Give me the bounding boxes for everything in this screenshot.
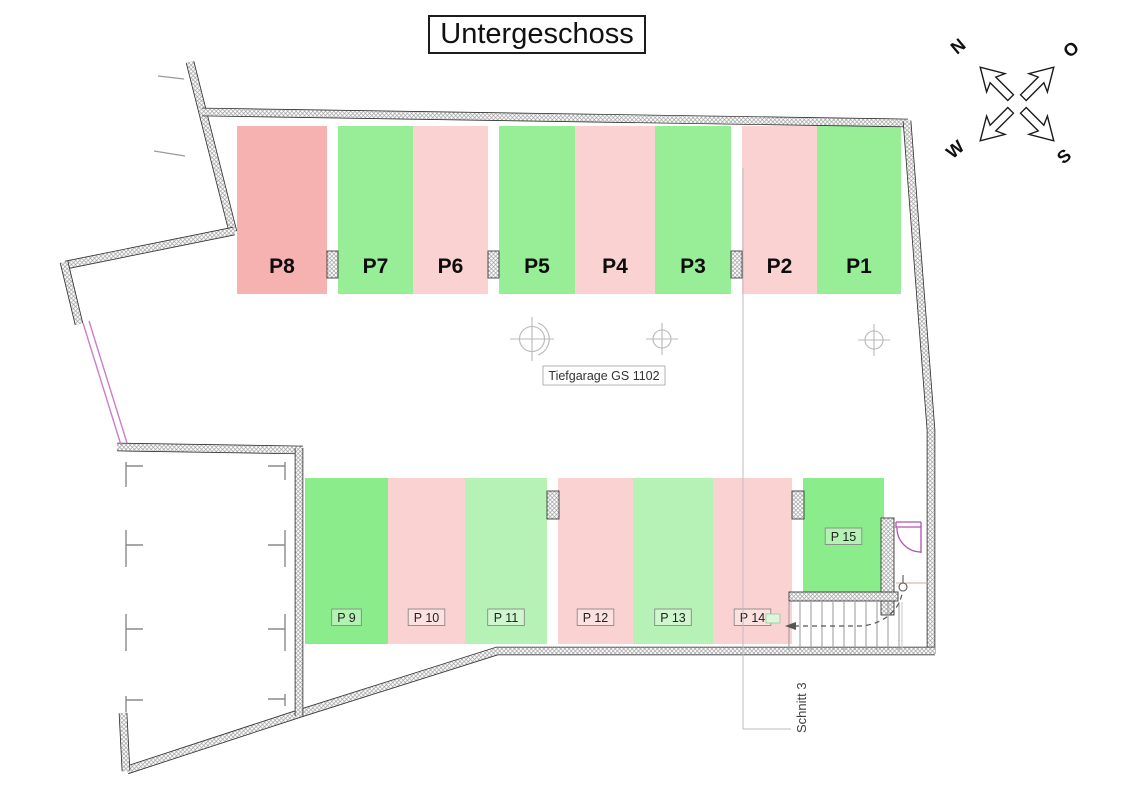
spot-label: P4 xyxy=(602,255,628,278)
floor-plan: Untergeschoss P8P7P6P5P4P3P2P1P 9P 10P 1… xyxy=(0,0,1137,800)
survey-ticks xyxy=(154,76,185,156)
spot-label: P5 xyxy=(524,255,550,278)
compass-arrow-west xyxy=(971,101,1020,150)
hatched-column xyxy=(789,592,898,601)
hatched-column xyxy=(488,251,499,278)
compass-arrow-south xyxy=(1014,101,1063,150)
compass-north-label: N xyxy=(947,35,970,59)
spot-label: P6 xyxy=(438,255,464,278)
spot-label: P 9 xyxy=(337,611,356,625)
spot-label: P 12 xyxy=(583,611,609,625)
wall-edge xyxy=(127,651,935,770)
spot-label: P2 xyxy=(767,255,793,278)
compass-arrow-north xyxy=(971,58,1020,107)
ramp-gate xyxy=(83,321,127,445)
wall-hatch xyxy=(64,262,79,324)
spot-label: P 11 xyxy=(494,611,519,625)
spot-label: P3 xyxy=(680,255,706,278)
wall-hatch xyxy=(123,713,126,771)
spot-label: P 13 xyxy=(660,611,686,625)
compass-west-label: W xyxy=(942,136,968,162)
compass-east-label: O xyxy=(1059,37,1083,61)
wall-hatch xyxy=(190,62,233,232)
grid-circle-3-cross xyxy=(858,324,890,356)
spot-label: P8 xyxy=(269,255,295,278)
floor-plan-drawing: P8P7P6P5P4P3P2P1P 9P 10P 11P 12P 13P 14P… xyxy=(0,0,1137,800)
spot-label: P7 xyxy=(363,255,389,278)
grid-circle-2-cross xyxy=(646,323,678,355)
compass-arrow-east xyxy=(1014,58,1063,107)
stair-start-symbol xyxy=(899,583,907,591)
wall-core xyxy=(127,651,935,770)
door-swing-arc xyxy=(897,528,921,552)
hatched-column xyxy=(731,251,742,278)
wall-hatch xyxy=(127,651,935,770)
hatched-column xyxy=(792,491,804,519)
small-green-tag xyxy=(766,614,780,623)
hatched-column xyxy=(327,251,338,278)
spot-label: P 15 xyxy=(831,530,857,544)
wall-hatch xyxy=(117,447,303,450)
spot-label: P 10 xyxy=(414,611,440,625)
hatched-column xyxy=(547,491,559,519)
compass-south-label: S xyxy=(1053,145,1075,168)
grid-circle-1-cross xyxy=(510,317,554,361)
compass-rose: N O W S xyxy=(942,35,1083,168)
room-partition-marks xyxy=(126,462,285,712)
section-label: Schnitt 3 xyxy=(794,682,809,733)
door xyxy=(896,522,921,553)
garage-label-text: Tiefgarage GS 1102 xyxy=(548,369,659,383)
wall-hatch xyxy=(66,231,234,265)
grid-column-markers xyxy=(510,317,890,361)
spot-label: P 14 xyxy=(740,611,766,625)
garage-label: Tiefgarage GS 1102 xyxy=(543,366,665,385)
spot-label: P1 xyxy=(846,255,872,278)
